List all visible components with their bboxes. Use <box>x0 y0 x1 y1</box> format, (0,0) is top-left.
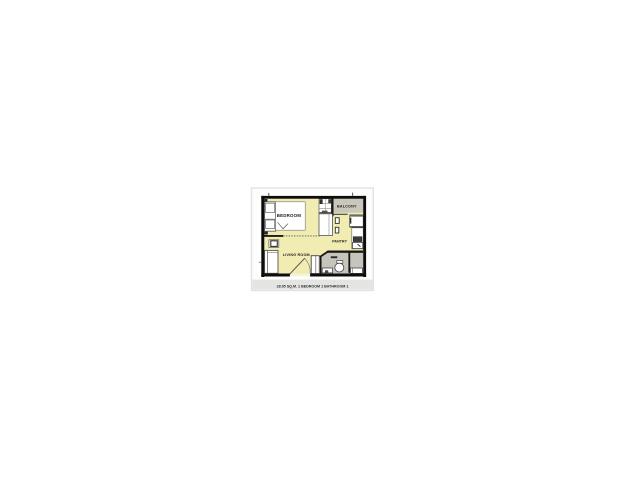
svg-text:BALCONY: BALCONY <box>337 204 357 208</box>
svg-text:BEDROOM: BEDROOM <box>277 213 301 218</box>
svg-text:LIVING ROOM: LIVING ROOM <box>283 253 310 257</box>
svg-text:PANTRY: PANTRY <box>332 239 347 243</box>
svg-text:28.05 SQ.M. 1 BEDROOM 1 BATHRO: 28.05 SQ.M. 1 BEDROOM 1 BATHROOM 1 <box>277 285 349 289</box>
